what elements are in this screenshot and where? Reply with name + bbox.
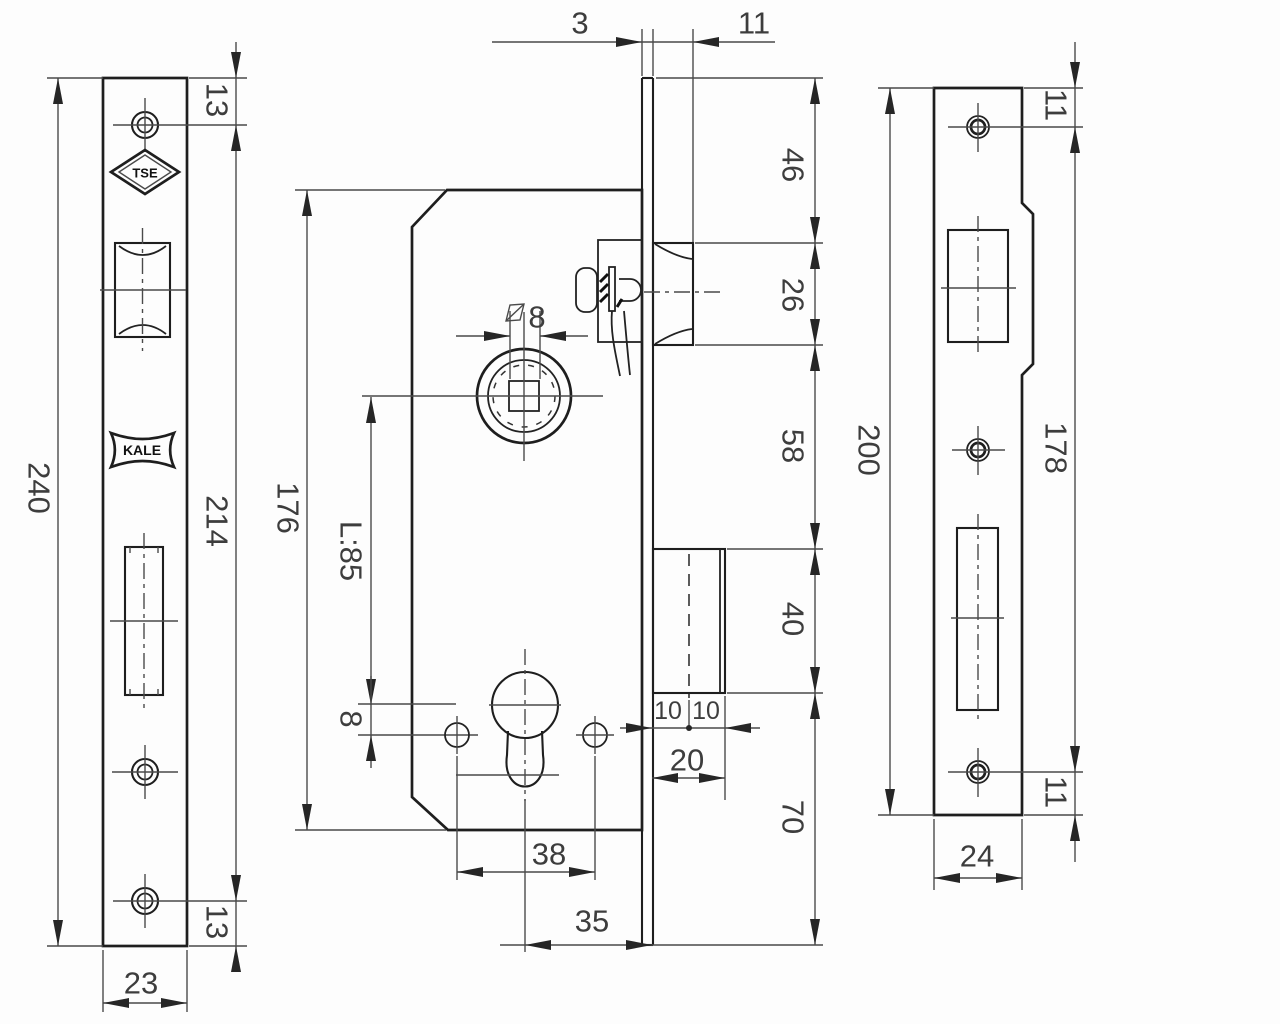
latch-bevel-bottom [655,329,692,344]
latch-bevel-top [655,244,692,259]
arrowhead [53,78,63,104]
arrowhead [934,873,960,883]
arrowhead [1070,815,1080,841]
dim-label-20: 20 [670,743,704,778]
dim-label-13-top: 13 [200,83,235,117]
latch-roller-opening [100,228,186,351]
deadbolt-opening-front [110,533,178,709]
drawing-canvas: TSE KALE [0,0,1280,1024]
arrowhead [885,789,895,815]
dimension-dot [686,725,692,731]
dimension-square-8: 8 [456,300,588,380]
arrowhead [1070,62,1080,88]
euro-cylinder-profile [456,649,561,801]
spring-coil [600,274,608,282]
tse-logo-text: TSE [132,166,158,181]
arrowhead [810,78,820,104]
latch-tail-end [619,279,641,301]
latch-bolt [576,240,722,376]
faceplate-front-view: TSE KALE [22,42,248,1012]
strike-deadbolt-opening [951,514,1004,724]
faceplate-side-view [642,78,653,945]
faceplate-outline [103,78,187,946]
arrowhead [810,243,820,269]
dim-label-200: 200 [852,424,887,476]
arrowhead [366,735,376,761]
latch-spindle-plate [609,267,615,311]
latch-tail-curve [612,311,620,376]
kale-logo-text: KALE [123,442,161,458]
arrowhead [810,693,820,719]
dim-label-214: 214 [200,495,235,547]
arrowhead [231,875,241,901]
strike-plate-view: 200 11 178 11 24 [852,42,1084,890]
tse-logo: TSE [111,150,179,194]
dim-label-13-bottom: 13 [200,905,235,939]
kale-logo: KALE [111,433,174,467]
arrowhead [626,723,652,733]
deadbolt-side-view [653,549,725,698]
dim-label-8: 8 [334,710,369,727]
arrowhead [810,549,820,575]
dimension-240: 240 [22,78,104,946]
dim-label-10-left: 10 [654,697,682,725]
arrowhead [810,217,820,243]
arrowhead [484,331,510,341]
dim-label-38: 38 [532,837,566,872]
dimension-176: 176 [271,190,447,830]
arrowhead [457,867,483,877]
spring-coil [600,294,608,302]
arrowhead [366,397,376,423]
latch-spring-cap [576,268,597,312]
arrowhead [1070,746,1080,772]
arrowhead [626,940,652,950]
arrowhead [693,37,719,47]
arrowhead [810,919,820,945]
dimension-214-13-13: 13 214 13 [189,42,247,972]
arrowhead [569,867,595,877]
dim-label-178: 178 [1039,422,1074,474]
dim-label-24: 24 [960,839,994,874]
dim-label-10-right: 10 [692,697,720,725]
dim-label-L85: L:85 [334,521,369,581]
dim-label-35: 35 [575,904,609,939]
dim-label-26: 26 [776,278,811,312]
arrowhead [885,88,895,114]
arrowhead [231,52,241,78]
dim-label-11-top: 11 [1039,89,1074,121]
dim-label-70: 70 [776,800,811,834]
dimension-178-11-11: 11 178 11 [1024,42,1083,862]
strike-latch-opening [941,216,1016,356]
dimension-L85: L:85 [334,397,457,705]
dimension-23: 23 [103,950,187,1012]
arrowhead [810,319,820,345]
arrowhead [231,946,241,972]
arrowhead [302,190,312,216]
lock-body-view: 8 176 L:85 8 [271,6,824,953]
dim-label-58: 58 [776,429,811,463]
latch-tail-curve [624,311,630,375]
arrowhead [810,667,820,693]
dim-label-11-bottom: 11 [1039,776,1074,808]
arrowhead [231,125,241,151]
arrowhead [725,723,751,733]
dim-label-3: 3 [571,6,588,41]
dim-label-40: 40 [776,602,811,636]
spindle-follower [362,312,603,461]
arrowhead [810,345,820,371]
dimension-35: 35 [500,799,823,952]
dim-label-23: 23 [124,966,158,1001]
dim-label-46: 46 [776,148,811,182]
arrowhead [616,37,642,47]
dimension-3-11-top: 3 11 [492,6,775,243]
arrowhead [1070,127,1080,153]
arrowhead [53,920,63,946]
arrowhead [302,804,312,830]
dimension-20: 20 [652,743,725,784]
dim-label-240: 240 [22,462,57,514]
arrowhead [525,940,551,950]
latch-guide-box [598,240,642,342]
arrowhead [161,998,187,1008]
dim-label-11-top: 11 [738,6,770,41]
spring-coil [617,299,622,307]
dim-label-square8: 8 [528,300,545,335]
dimension-24: 24 [934,819,1022,890]
strike-screw-hole-middle [952,426,1005,475]
dimension-200: 200 [852,88,935,815]
dimension-chain-right: 46 26 58 40 70 [656,78,823,945]
lock-technical-drawing: TSE KALE [0,0,1280,1024]
screw-hole-middle [112,745,178,799]
arrowhead [996,873,1022,883]
dim-label-176: 176 [271,482,306,534]
arrowhead [810,523,820,549]
spring-coil [600,284,608,292]
